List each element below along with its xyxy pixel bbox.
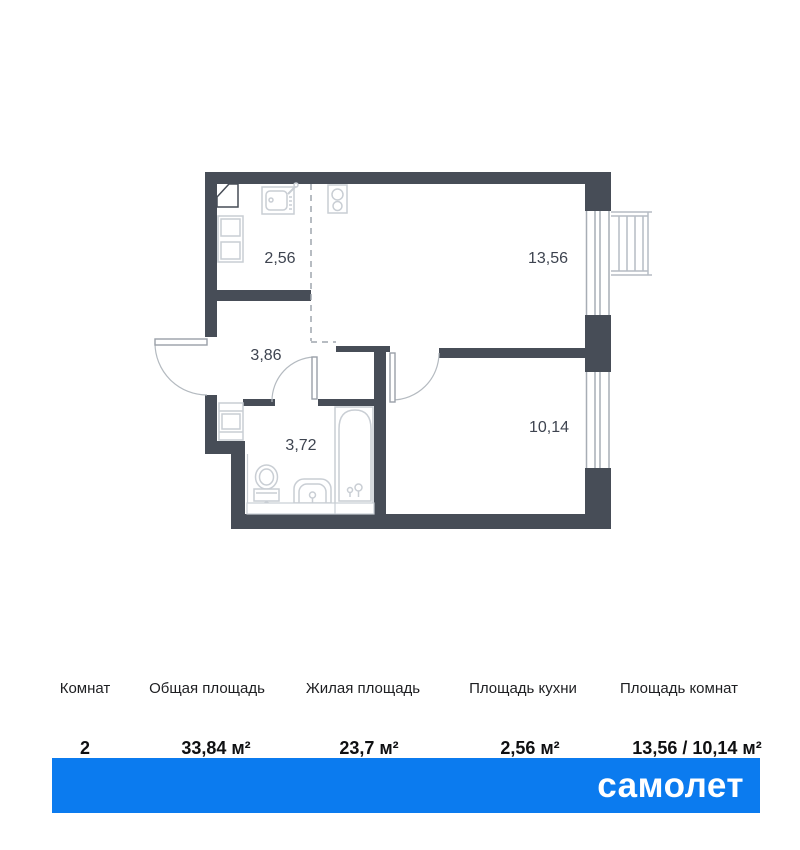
wall-bathroom-right xyxy=(374,352,386,514)
living-area-value: 23,7 м² xyxy=(312,738,426,759)
kitchen-area-value: 2,56 м² xyxy=(476,738,584,759)
summary-col-living-area: Жилая площадь 23,7 м² xyxy=(306,680,420,759)
bathroom-door-leaf xyxy=(312,357,317,399)
corner-vent-icon xyxy=(217,184,238,207)
entrance-door xyxy=(155,339,207,395)
bedroom-area-label: 10,14 xyxy=(529,419,569,436)
rooms-area-value: 13,56 / 10,14 м² xyxy=(632,738,761,759)
wall-step-horizontal xyxy=(205,441,245,454)
kitchen-sink-icon xyxy=(262,183,298,214)
wall-left-upper xyxy=(205,184,217,337)
bathroom-area-label: 3,72 xyxy=(285,437,316,454)
bathtub-icon xyxy=(335,407,373,504)
toilet-icon xyxy=(254,465,279,506)
wall-top xyxy=(205,172,611,184)
rooms-value: 2 xyxy=(60,738,111,759)
rooms-label: Комнат xyxy=(60,680,111,697)
total-area-label: Общая площадь xyxy=(149,680,265,697)
bedroom-door xyxy=(390,353,439,402)
brand-banner: самолет xyxy=(52,758,760,813)
fridge-cabinet-icon xyxy=(218,216,243,262)
kitchen-area-label: Площадь кухни xyxy=(469,680,577,697)
wall-room-divider xyxy=(439,348,585,358)
total-area-value: 33,84 м² xyxy=(158,738,274,759)
entrance-door-leaf xyxy=(155,339,207,345)
floorplan-card: 2,56 13,56 3,86 3,72 10,14 Комнат 2 Обща… xyxy=(0,0,800,850)
wall-t-horizontal xyxy=(336,346,390,352)
washing-machine-icon xyxy=(219,403,243,440)
wall-bathroom-top-left xyxy=(243,399,275,406)
rooms-area-label: Площадь комнат xyxy=(614,680,743,697)
wall-bottom xyxy=(231,514,611,529)
bathroom-sink-icon xyxy=(294,479,331,503)
floorplan-drawing: 2,56 13,56 3,86 3,72 10,14 xyxy=(0,0,800,650)
summary-col-rooms-area: Площадь комнат 13,56 / 10,14 м² xyxy=(614,680,743,759)
bedroom-door-leaf xyxy=(390,353,395,402)
balcony-railing xyxy=(611,212,652,275)
summary-col-kitchen-area: Площадь кухни 2,56 м² xyxy=(469,680,577,759)
summary-col-total-area: Общая площадь 33,84 м² xyxy=(149,680,265,759)
stove-icon xyxy=(328,185,347,213)
wall-right-top xyxy=(585,172,611,211)
wall-right-middle xyxy=(585,315,611,372)
samolet-logo: самолет xyxy=(597,766,760,806)
living-area-label: Жилая площадь xyxy=(306,680,420,697)
wall-step-vertical xyxy=(231,454,245,514)
summary-col-rooms: Комнат 2 xyxy=(60,680,111,759)
wall-kitchen-divider xyxy=(217,290,311,301)
kitchen-area-label: 2,56 xyxy=(264,250,295,267)
living-area-label: 13,56 xyxy=(528,250,568,267)
hallway-area-label: 3,86 xyxy=(250,347,281,364)
wall-right-bottom xyxy=(585,468,611,529)
wall-bathroom-top-right xyxy=(318,399,374,406)
plumbing-chase xyxy=(247,503,374,514)
